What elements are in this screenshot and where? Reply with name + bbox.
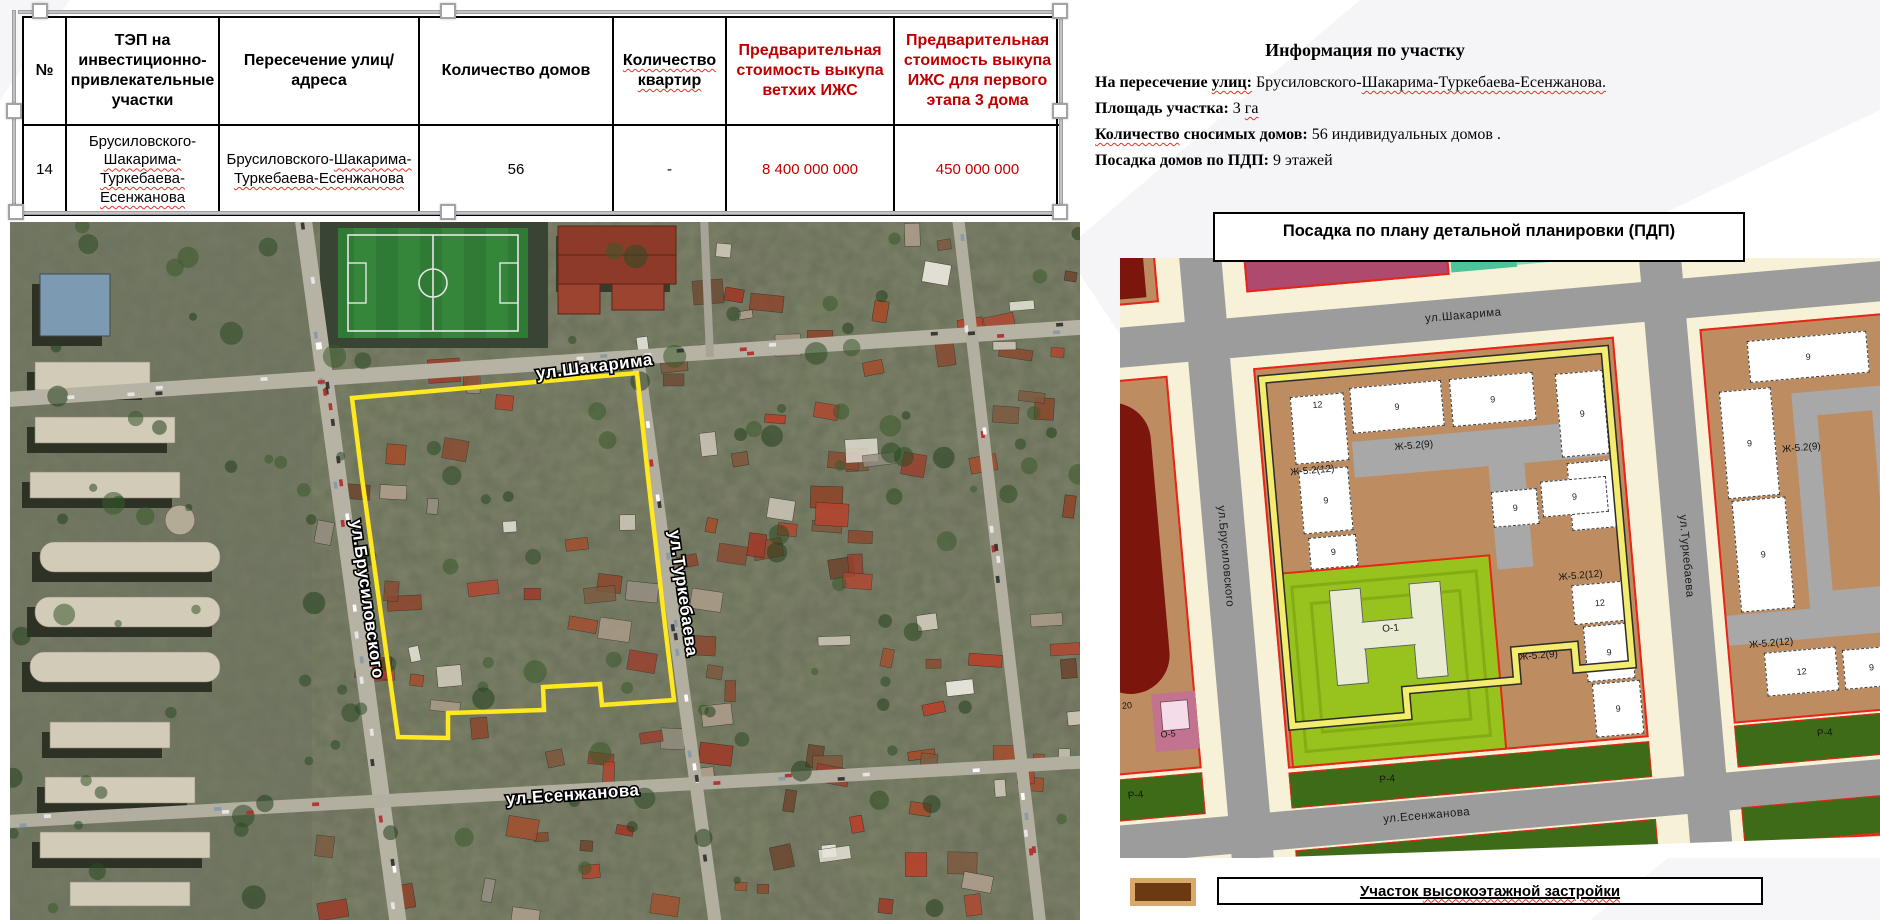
school-building xyxy=(556,226,676,314)
pdp-plan-canvas: 12 9 9 9 9 9 9 9 9 12 9 9 9 9 9 12 9 9 Ж… xyxy=(1120,258,1880,858)
pdp-label-r4: Р-4 xyxy=(1379,773,1395,785)
pdp-title: Посадка по плану детальной планировки (П… xyxy=(1283,222,1675,241)
info-line-houses: Количество сносимых домов: 56 индивидуал… xyxy=(1095,122,1635,148)
col-header-num: № xyxy=(24,18,67,126)
football-pitch xyxy=(320,222,548,348)
pdp-label-20: 20 xyxy=(1122,700,1133,711)
legend-box[interactable]: Участок высокоэтажной застройки xyxy=(1217,877,1763,905)
row-cost-first: 450 000 000 xyxy=(895,126,1060,214)
col-header-cost-first: Предварительная стоимость выкупа ИЖС для… xyxy=(895,18,1060,126)
col-header-houses: Количество домов xyxy=(420,18,614,126)
row-houses: 56 xyxy=(420,126,614,214)
pdp-label-r4: Р-4 xyxy=(1817,727,1833,739)
investment-sites-table[interactable]: № ТЭП на инвестиционно-привлекательные у… xyxy=(22,16,1058,216)
row-cross: Брусиловского-Шакарима-Туркебаева-Есенжа… xyxy=(220,126,420,214)
legend: Участок высокоэтажной застройки xyxy=(1120,868,1880,914)
legend-swatch-highrise xyxy=(1130,878,1196,906)
legend-label: Участок высокоэтажной застройки xyxy=(1360,883,1620,900)
row-num: 14 xyxy=(24,126,67,214)
pdp-label-o5: О-5 xyxy=(1160,728,1176,739)
pdp-label-r4: Р-4 xyxy=(1127,789,1143,801)
col-header-tep: ТЭП на инвестиционно-привлекательные уча… xyxy=(67,18,220,126)
pdp-label-o1: О-1 xyxy=(1382,623,1400,635)
row-cost-old: 8 400 000 000 xyxy=(727,126,895,214)
pdp-title-box[interactable]: Посадка по плану детальной планировки (П… xyxy=(1213,212,1745,262)
row-flats: - xyxy=(614,126,727,214)
info-line-floors: Посадка домов по ПДП: 9 этажей xyxy=(1095,148,1635,174)
site-info-textbox[interactable]: Информация по участку На пересечение ули… xyxy=(1095,40,1635,174)
info-line-area: Площадь участка: 3 га xyxy=(1095,96,1635,122)
pdp-site-boundary xyxy=(1120,258,1880,858)
col-header-flats: Количество квартир xyxy=(614,18,727,126)
satellite-map[interactable]: ул.Шакарима ул.Брусиловского ул.Туркебае… xyxy=(10,222,1080,920)
pdp-plan-map[interactable]: 12 9 9 9 9 9 9 9 9 12 9 9 9 9 9 12 9 9 Ж… xyxy=(1120,258,1880,858)
col-header-cross: Пересечение улиц/адреса xyxy=(220,18,420,126)
col-header-cost-old: Предварительная стоимость выкупа ветхих … xyxy=(727,18,895,126)
row-site: Брусиловского-Шакарима-Туркебаева-Есенжа… xyxy=(67,126,220,214)
info-title: Информация по участку xyxy=(1095,40,1635,61)
satellite-map-image: ул.Шакарима ул.Брусиловского ул.Туркебае… xyxy=(10,222,1080,920)
info-line-streets: На пересечение улиц: Брусиловского-Шакар… xyxy=(1095,70,1635,96)
